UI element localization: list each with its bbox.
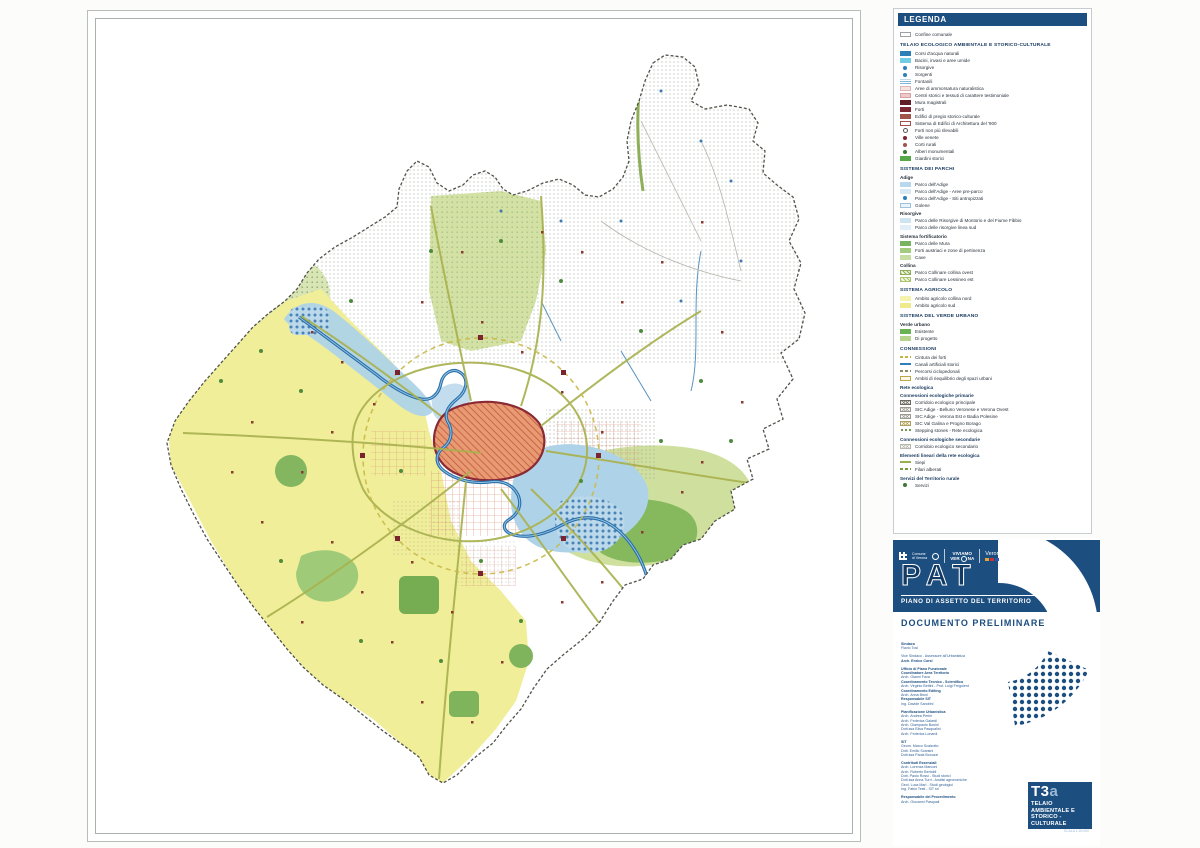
credits-list: SindacoFlavio TosiVice Sindaco - Assesso… [901, 642, 1029, 804]
legend-item: Corridoio ecologico principale [900, 399, 1087, 406]
legend-item: Cintura dei forti [900, 354, 1087, 361]
legend-item: Servizi [900, 482, 1087, 489]
legend-item: Parco dell'Adige - Aree pre-parco [900, 188, 1087, 195]
legend-item-label: Corridoio ecologico principale [915, 399, 975, 406]
legend-item: Corti rurali [900, 141, 1087, 148]
legend-bold: Elementi lineari della rete ecologica [900, 453, 1087, 458]
legend-swatch [900, 414, 911, 419]
map-frame [95, 18, 853, 834]
legend-item: Forti non più rilevabili [900, 127, 1087, 134]
legend-swatch [903, 143, 907, 147]
legend-item: Fontanili [900, 78, 1087, 85]
legend-item: Confine comunale [900, 31, 1087, 38]
legend-item: Parco delle Mura [900, 240, 1087, 247]
sheet-scale: SCALA 1:20.000 [1031, 829, 1089, 833]
legend-swatch [900, 407, 911, 412]
legend-item-label: Forti non più rilevabili [915, 127, 958, 134]
legend-item: Ambito agricolo sud [900, 302, 1087, 309]
legend-swatch [900, 468, 911, 470]
legend-subheader: Collina [900, 263, 1087, 268]
sheet-title: TELAIO AMBIENTALE E STORICO - CULTURALE [1031, 801, 1089, 827]
credit-line: Arch. Giovanni Pasquali [901, 800, 1029, 804]
legend-header: CONNESSIONI [900, 347, 1087, 352]
legend-item-label: Ambiti di riequilibrio degli spazi urban… [915, 375, 992, 382]
legend-item-label: Parco dell'Adige [915, 181, 948, 188]
legend-item: Ambiti di riequilibrio degli spazi urban… [900, 375, 1087, 382]
legend-subheader: Adige [900, 175, 1087, 180]
legend-swatch [900, 255, 911, 260]
legend-item-label: Bacini, invasi e aree umide [915, 57, 970, 64]
legend-item-label: Ambito agricolo collina nord [915, 295, 971, 302]
legend-swatch [900, 428, 911, 433]
legend-header: SISTEMA DEL VERDE URBANO [900, 314, 1087, 319]
map-artwork [96, 19, 852, 833]
pat-subtitle: PIANO DI ASSETTO DEL TERRITORIO [901, 595, 1053, 605]
document-type: DOCUMENTO PRELIMINARE [901, 618, 1045, 628]
legend-item: SIC Adige - Verona Est e Badia Polesine [900, 413, 1087, 420]
legend-bold: Connessioni ecologiche secondarie [900, 437, 1087, 442]
legend-item-label: SIC Adige - Belluno Veronese e Verona Ov… [915, 406, 1008, 413]
legend-bold: Rete ecologica [900, 385, 1087, 390]
legend-swatch [900, 189, 911, 194]
page: { "colors": { "accent_navy": "#1c4e80", … [0, 0, 1200, 848]
legend-swatch [900, 121, 911, 126]
urban-park-4 [509, 644, 533, 668]
legend-header: TELAIO ECOLOGICO AMBIENTALE E STORICO-CU… [900, 43, 1087, 48]
legend-item: Parco delle risorgive linea sud [900, 224, 1087, 231]
legend-item-label: Confine comunale [915, 31, 952, 38]
legend-item-label: Canali artificiali storici [915, 361, 959, 368]
legend-swatch [900, 32, 911, 37]
legend-item-label: Corti rurali [915, 141, 936, 148]
map-sheet [87, 10, 861, 842]
legend-item-label: Sistema di Edifici di Architettura del '… [915, 120, 997, 127]
legend-item-label: Parco dell'Adige - Aree pre-parco [915, 188, 983, 195]
sheet-code-box: T3a TELAIO AMBIENTALE E STORICO - CULTUR… [1028, 782, 1092, 829]
legend-item-label: Golene [915, 202, 930, 209]
legend-item-label: Servizi [915, 482, 929, 489]
legend-item-label: Fontanili [915, 78, 932, 85]
legend-item: Esistente [900, 328, 1087, 335]
legend-item: Percorsi ciclopedonali [900, 368, 1087, 375]
legend-subheader: Verde urbano [900, 322, 1087, 327]
legend-title: LEGENDA [898, 13, 1087, 26]
legend-item: Aree di ammorsatura naturalistica [900, 85, 1087, 92]
legend-item: Parco dell'Adige - Siti antropizzati [900, 195, 1087, 202]
legend-item-label: Parco delle Mura [915, 240, 950, 247]
legend-item-label: Corridoio ecologico secondario [915, 443, 978, 450]
legend-item: Parco delle Risorgive di Montorio e del … [900, 217, 1087, 224]
legend-swatch [900, 156, 911, 161]
legend-item: Sistema di Edifici di Architettura del '… [900, 120, 1087, 127]
legend-item: Parco Collinare collina ovest [900, 269, 1087, 276]
legend-swatch [900, 225, 911, 230]
logo-divider-2 [979, 549, 980, 563]
urban-park-3 [449, 691, 479, 717]
legend-item: Golene [900, 202, 1087, 209]
legend-header: SISTEMA AGRICOLO [900, 288, 1087, 293]
legend-swatch [900, 93, 911, 98]
legend-item-label: Forti austriaci e zone di pertinenza [915, 247, 985, 254]
legend-item: Ambito agricolo collina nord [900, 295, 1087, 302]
legend-item-label: Di progetto [915, 335, 937, 342]
legend-item-label: Ambito agricolo sud [915, 302, 955, 309]
legend-item: Edifici di pregio storico-culturale [900, 113, 1087, 120]
legend-subheader: Risorgive [900, 211, 1087, 216]
legend-item-label: Filari alberati [915, 466, 941, 473]
legend-item: Corsi d'acqua naturali [900, 50, 1087, 57]
legend-item-label: Parco delle risorgive linea sud [915, 224, 976, 231]
legend-item: SIC Val Galina e Progno Borago [900, 420, 1087, 427]
legend-swatch [900, 58, 911, 63]
legend-item: Cave [900, 254, 1087, 261]
legend-item-label: Risorgive [915, 64, 934, 71]
legend-item: Parco dell'Adige [900, 181, 1087, 188]
legend-item-label: SIC Adige - Verona Est e Badia Polesine [915, 413, 998, 420]
legend-swatch [900, 363, 911, 365]
legend-swatch [900, 107, 911, 112]
legend-item-label: Parco Collinare collina ovest [915, 269, 973, 276]
legend-item: Canali artificiali storici [900, 361, 1087, 368]
legend-item: Filari alberati [900, 466, 1087, 473]
legend-swatch [900, 241, 911, 246]
legend-swatch [900, 356, 911, 358]
legend-item: Giardini storici [900, 155, 1087, 162]
legend-swatch [900, 270, 911, 275]
legend-item: Sorgenti [900, 71, 1087, 78]
legend-swatch [900, 86, 911, 91]
legend-swatch [903, 196, 907, 200]
legend-bold: Connessioni ecologiche primarie [900, 393, 1087, 398]
legend-item-label: Parco Collinare Lessineo est [915, 276, 973, 283]
title-block: Comune di Verona VIVIAMO VER NA Verona P… [893, 538, 1100, 846]
legend-item-label: Cintura dei forti [915, 354, 946, 361]
legend-swatch [900, 218, 911, 223]
legend-swatch [903, 483, 907, 487]
legend-item-label: Giardini storici [915, 155, 944, 162]
legend-item: Stepping stones - Rete ecologica [900, 427, 1087, 434]
legend-item: Risorgive [900, 64, 1087, 71]
legend-item-label: Sorgenti [915, 71, 932, 78]
legend-swatch [903, 136, 907, 140]
legend-item: Corridoio ecologico secondario [900, 443, 1087, 450]
urban-park-1 [399, 576, 439, 614]
legend-swatch [900, 277, 911, 282]
legend-item-label: SIC Val Galina e Progno Borago [915, 420, 981, 427]
legend-item-label: Parco delle Risorgive di Montorio e del … [915, 217, 1021, 224]
legend-item-label: Parco dell'Adige - Siti antropizzati [915, 195, 983, 202]
legend-swatch [900, 421, 911, 426]
legend-item-label: Siepi [915, 459, 925, 466]
legend-swatch [900, 444, 911, 449]
legend-item: Di progetto [900, 335, 1087, 342]
legend-item: Siepi [900, 459, 1087, 466]
legend-item-label: Edifici di pregio storico-culturale [915, 113, 980, 120]
legend-swatch [900, 51, 911, 56]
legend-item: Ville venete [900, 134, 1087, 141]
legend-header: SISTEMA DEI PARCHI [900, 167, 1087, 172]
legend-item-label: Stepping stones - Rete ecologica [915, 427, 982, 434]
legend-item-label: Percorsi ciclopedonali [915, 368, 960, 375]
legend-item: Alberi monumentali [900, 148, 1087, 155]
verona-flags-icon [985, 558, 1002, 561]
legend-swatch [900, 114, 911, 119]
sheet-code: T3a [1031, 784, 1089, 799]
legend-swatch [903, 66, 907, 70]
legend-swatch [900, 400, 911, 405]
legend-item: Parco Collinare Lessineo est [900, 276, 1087, 283]
legend-item: SIC Adige - Belluno Veronese e Verona Ov… [900, 406, 1087, 413]
legend-swatch [900, 296, 911, 301]
legend-item: Bacini, invasi e aree umide [900, 57, 1087, 64]
legend-item-label: Centri storici e tessuti di carattere te… [915, 92, 1009, 99]
legend-item: Forti austriaci e zone di pertinenza [900, 247, 1087, 254]
legend-item: Forti [900, 106, 1087, 113]
legend-swatch [900, 329, 911, 334]
legend-item-label: Ville venete [915, 134, 939, 141]
legend-item-label: Cave [915, 254, 926, 261]
legend-item-label: Aree di ammorsatura naturalistica [915, 85, 984, 92]
legend-item-label: Forti [915, 106, 924, 113]
legend-entries: Confine comunaleTELAIO ECOLOGICO AMBIENT… [894, 29, 1091, 489]
legend-swatch [900, 303, 911, 308]
legend-subheader: Sistema fortificatorio [900, 234, 1087, 239]
legend-swatch [900, 100, 911, 105]
legend-swatch [903, 73, 907, 77]
legend-item: Mura magistrali [900, 99, 1087, 106]
legend-swatch [900, 376, 911, 381]
legend-item-label: Alberi monumentali [915, 148, 954, 155]
legend-swatch [900, 370, 911, 372]
legend-swatch [900, 461, 911, 463]
legend-swatch [900, 336, 911, 341]
legend-panel: LEGENDA Confine comunaleTELAIO ECOLOGICO… [893, 8, 1092, 534]
legend-item-label: Corsi d'acqua naturali [915, 50, 959, 57]
verona-tourism-logo: Verona [985, 551, 1002, 561]
legend-bold: Servizi del Territorio rurale [900, 476, 1087, 481]
legend-swatch [903, 150, 907, 154]
legend-item-label: Esistente [915, 328, 934, 335]
pat-acronym: PAT [901, 561, 978, 591]
legend-swatch [903, 128, 908, 133]
legend-swatch [900, 248, 911, 253]
legend-swatch [900, 203, 911, 208]
legend-swatch [900, 79, 911, 84]
legend-item-label: Mura magistrali [915, 99, 946, 106]
legend-item: Centri storici e tessuti di carattere te… [900, 92, 1087, 99]
legend-swatch [900, 182, 911, 187]
